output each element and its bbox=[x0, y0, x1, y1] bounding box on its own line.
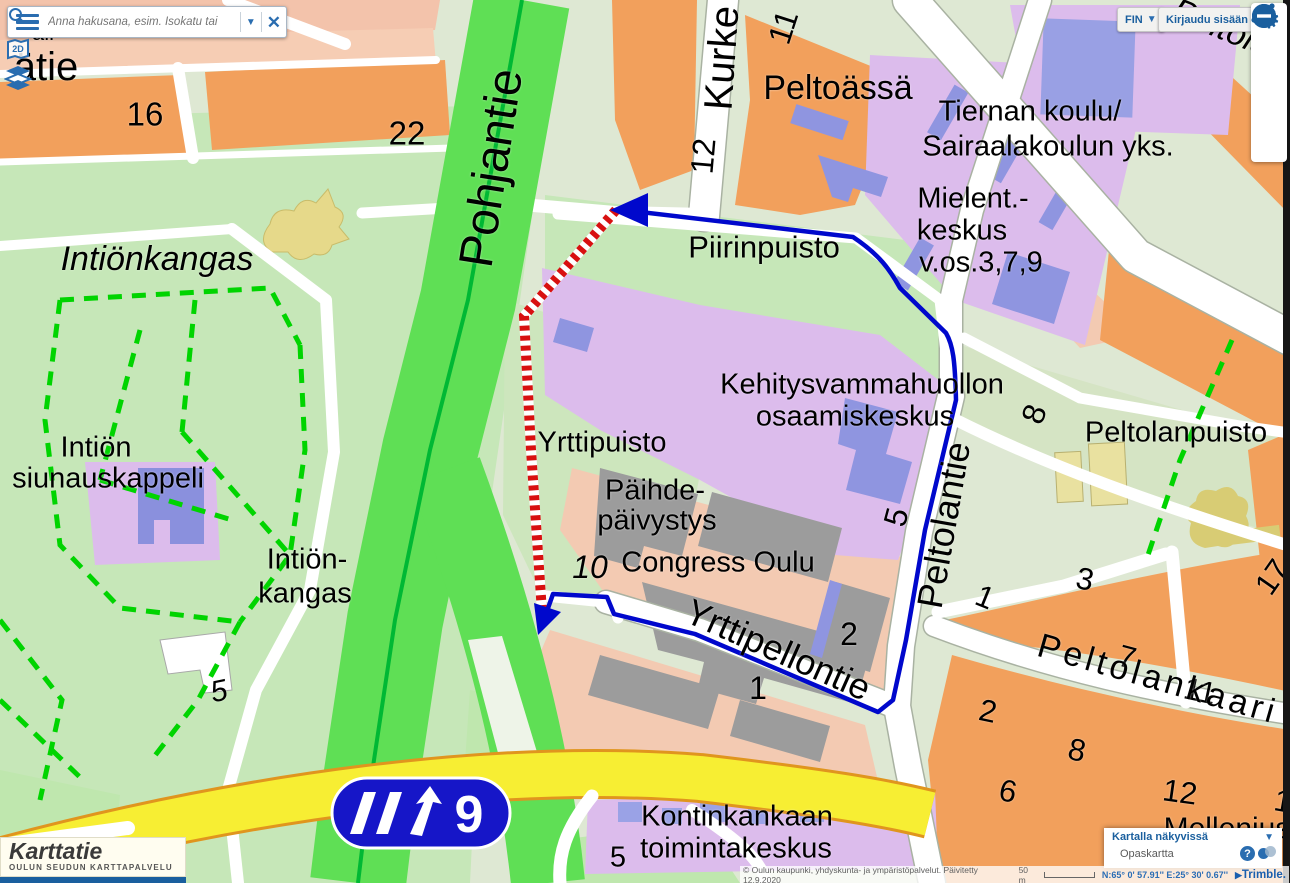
svg-text:2D: 2D bbox=[12, 44, 24, 54]
trimble-triangle-icon: ▶ bbox=[1235, 870, 1242, 880]
zoom-out-button[interactable] bbox=[1256, 132, 1282, 156]
search-bar: ▼ ✕ bbox=[7, 6, 287, 38]
map-label: Kehitysvammahuollon bbox=[720, 371, 1004, 400]
app-logo: Karttatie OULUN SEUDUN KARTTAPALVELU bbox=[0, 837, 186, 877]
map-toolbar: ⚙ bbox=[1251, 3, 1287, 162]
map-label: 2 bbox=[976, 694, 999, 728]
map-label: 3 bbox=[1073, 562, 1096, 596]
search-input[interactable] bbox=[46, 15, 230, 29]
active-layer-name: Opaskartta bbox=[1120, 848, 1174, 860]
panel-collapse-caret-icon[interactable]: ▼ bbox=[1264, 832, 1274, 843]
map-label: 12 bbox=[686, 137, 721, 175]
map-label: Pohjantie bbox=[453, 65, 532, 270]
layers-panel-title: Kartalla näkyvissä bbox=[1112, 831, 1208, 843]
coordinates-readout: N:65° 0' 57.91'' E:25° 30' 0.67'' bbox=[1102, 870, 1228, 880]
map-label: 1 bbox=[971, 579, 999, 614]
map-label: Intiönkangas bbox=[61, 242, 254, 276]
map-label: Mielent.- bbox=[917, 185, 1028, 214]
language-label: FIN bbox=[1125, 14, 1143, 26]
app-logo-subtitle: OULUN SEUDUN KARTTAPALVELU bbox=[9, 863, 177, 872]
measure-route-button[interactable] bbox=[1256, 39, 1282, 63]
map-label: keskus bbox=[917, 217, 1007, 246]
map-label: Intiön bbox=[61, 434, 132, 463]
login-button[interactable]: Kirjaudu sisään bbox=[1158, 7, 1256, 32]
map-label: v.os.3,7,9 bbox=[919, 249, 1043, 278]
map-labels-layer: PohjantieKurke1112PeltoässäTiernan koulu… bbox=[0, 0, 1290, 883]
map-label: Kontinkankaan bbox=[641, 803, 833, 832]
map-label: 22 bbox=[389, 117, 426, 150]
trimble-logo: ▶Trimble. bbox=[1235, 869, 1286, 881]
help-icon[interactable]: ? bbox=[1240, 846, 1255, 861]
map-label: toimintakeskus bbox=[640, 835, 832, 864]
map-label: 10 bbox=[572, 551, 608, 583]
search-options-caret-icon[interactable]: ▼ bbox=[241, 7, 261, 37]
map-label: päivystys bbox=[597, 507, 716, 536]
karttatie-app: 9 PohjantieKurke1112PeltoässäTiernan kou… bbox=[0, 0, 1290, 883]
zoom-in-button[interactable] bbox=[1256, 101, 1282, 125]
logo-accent-bar bbox=[0, 877, 186, 883]
map-label: Piirinpuisto bbox=[688, 232, 840, 263]
map-label: Peltolankaari bbox=[1034, 628, 1282, 729]
map-label: Tiernan koulu/ bbox=[939, 98, 1122, 127]
login-label: Kirjaudu sisään bbox=[1166, 14, 1248, 26]
scale-label: 50 m bbox=[1019, 865, 1037, 883]
map-label: kangas bbox=[258, 580, 352, 609]
map-label: 5 bbox=[208, 676, 231, 709]
map-label: Peltolantie bbox=[912, 439, 977, 611]
map-label: Congress Oulu bbox=[621, 549, 814, 578]
map-label: 2 bbox=[840, 618, 858, 650]
attribution-text: © Oulun kaupunki, yhdyskunta- ja ympäris… bbox=[743, 865, 1012, 883]
map-label: 1 bbox=[749, 672, 767, 704]
map-label: Päihde- bbox=[605, 477, 705, 506]
map-label: 5 bbox=[610, 844, 626, 873]
map-label: osaamiskeskus bbox=[756, 403, 954, 432]
map-label: Peltolanpuisto bbox=[1085, 419, 1267, 448]
map-label: siunauskappeli bbox=[12, 465, 204, 494]
scale-bar bbox=[1044, 872, 1095, 878]
chevron-down-icon: ▼ bbox=[1147, 14, 1157, 25]
layer-opacity-icon[interactable] bbox=[1258, 846, 1276, 861]
map-label: 8 bbox=[1065, 733, 1088, 767]
map-label: Sairaalakoulun yks. bbox=[922, 133, 1173, 162]
close-icon[interactable]: ✕ bbox=[262, 7, 286, 37]
map-label: Intiön- bbox=[267, 546, 348, 575]
map-label: Yrttipuisto bbox=[538, 429, 667, 458]
map-label: 12 bbox=[1161, 774, 1199, 809]
status-bar: © Oulun kaupunki, yhdyskunta- ja ympäris… bbox=[740, 866, 1289, 883]
minus-icon bbox=[1251, 3, 1277, 29]
map-label: 11 bbox=[763, 6, 804, 47]
layers-panel: Kartalla näkyvissä ▼ Opaskartta ? bbox=[1104, 828, 1282, 868]
map-label: 5 bbox=[878, 504, 914, 529]
map-label: 16 bbox=[127, 98, 164, 131]
map-label: 6 bbox=[996, 774, 1019, 808]
map-label: Kurke bbox=[698, 4, 745, 111]
search-icon[interactable] bbox=[230, 7, 240, 37]
locate-button[interactable] bbox=[1256, 70, 1282, 94]
map-label: Peltoässä bbox=[763, 71, 912, 105]
map-label: 8 bbox=[1016, 400, 1052, 428]
app-logo-title: Karttatie bbox=[9, 839, 177, 863]
